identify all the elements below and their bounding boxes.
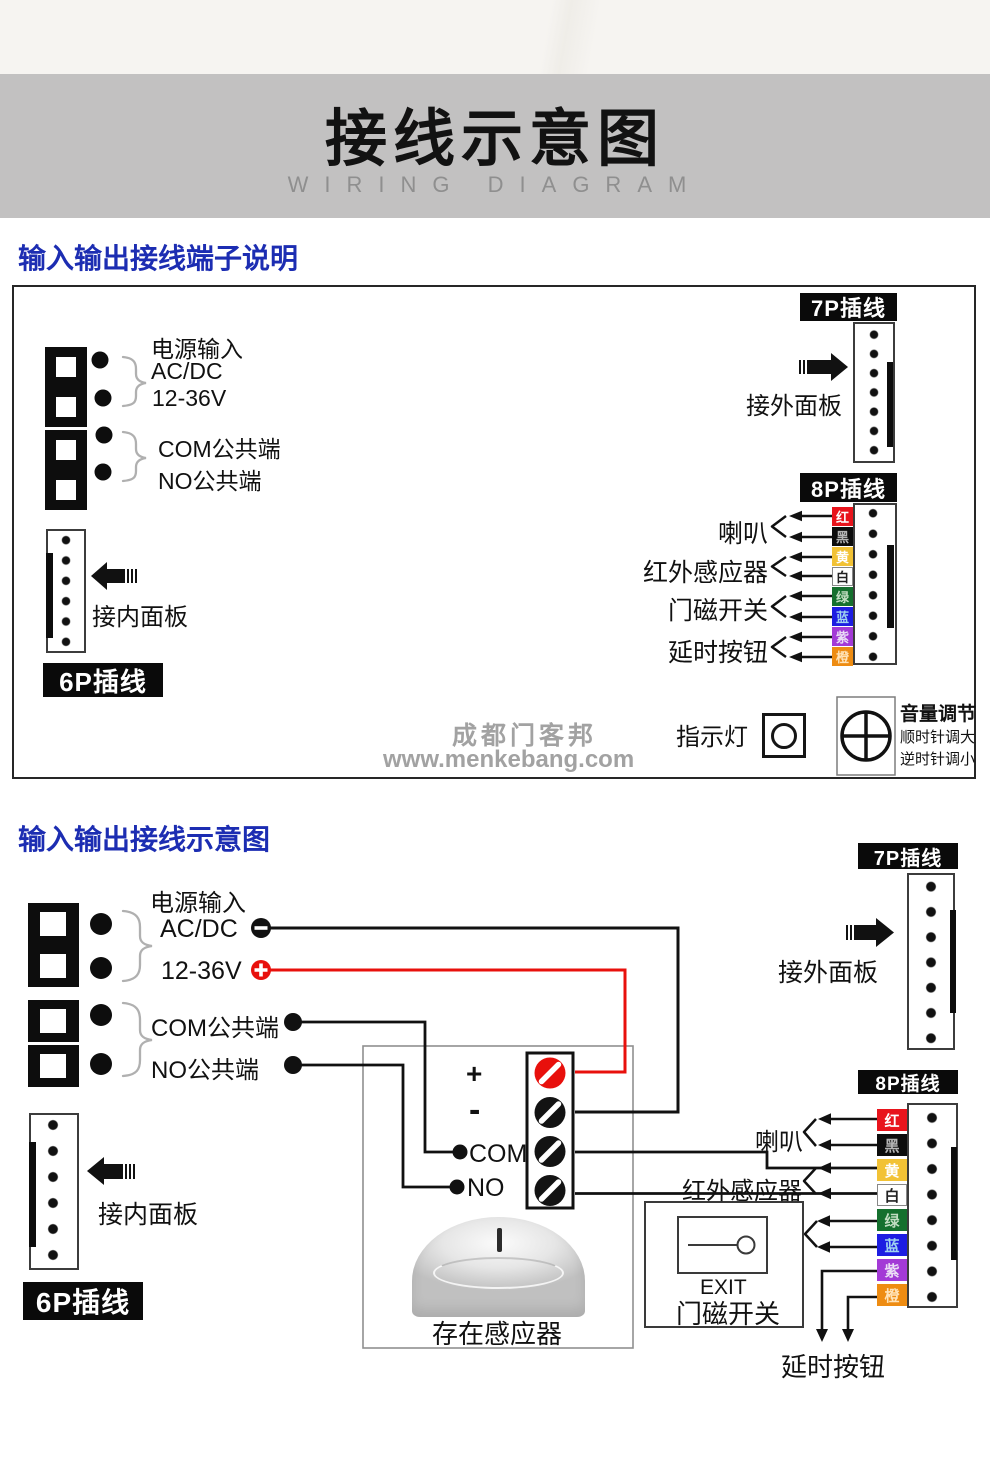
plug-8p-label: 8P插线 <box>800 473 897 502</box>
no-terminal-label: NO公共端 <box>158 462 262 496</box>
relay-plus-label: + <box>466 1058 482 1090</box>
terminal-braces <box>123 357 146 481</box>
volume-cw-note: 顺时针调大 <box>900 726 975 747</box>
plug-6p-arrow-icon <box>87 1157 134 1185</box>
terminal-square <box>28 945 79 987</box>
wire-chip-blue: 蓝 <box>877 1234 907 1256</box>
wire-chip-red: 红 <box>877 1109 907 1131</box>
speaker-label: 喇叭 <box>718 514 768 550</box>
com-no-wires <box>284 1013 468 1195</box>
section1-heading: 输入输出接线端子说明 <box>18 237 298 277</box>
acdc-label: AC/DC <box>160 915 238 944</box>
inner-panel-caption: 接内面板 <box>98 1195 198 1231</box>
paper-texture-strip <box>0 0 990 74</box>
wire-chip-purple: 紫 <box>877 1259 907 1281</box>
terminal-braces <box>123 911 152 1076</box>
connector-6p-key-bar <box>29 1142 36 1247</box>
indicator-label: 指示灯 <box>676 717 748 752</box>
terminal-square <box>28 1000 79 1042</box>
wire-chip-blue: 蓝 <box>832 607 853 626</box>
plug-7p-label: 7P插线 <box>800 293 897 321</box>
plug-6p-label: 6P插线 <box>23 1282 143 1320</box>
wire-color-chips: 红 黑 黄 白 绿 蓝 紫 橙 <box>877 1109 907 1309</box>
ir-sensor-label: 红外感应器 <box>682 1171 802 1206</box>
relay-minus-label: - <box>469 1091 480 1130</box>
indicator-light <box>762 713 806 758</box>
presence-sensor-label: 存在感应器 <box>432 1314 562 1351</box>
wire-chip-yellow: 黄 <box>832 547 853 566</box>
outer-panel-caption: 接外面板 <box>778 953 878 989</box>
com-terminal-label: COM公共端 <box>158 430 281 464</box>
connector-7p-key-bar <box>950 910 956 1013</box>
connector-8p-pins <box>866 503 880 667</box>
outer-panel-caption: 接外面板 <box>746 386 842 421</box>
page-subtitle: WIRING DIAGRAM <box>0 172 990 198</box>
sensor-screw-terminal <box>527 1053 573 1208</box>
terminal-square <box>45 430 87 470</box>
wire-color-chips: 红 黑 黄 白 绿 蓝 紫 橙 <box>832 507 853 667</box>
terminal-square <box>45 347 87 387</box>
plug-7p-arrow-icon <box>847 918 894 947</box>
plug-7p-arrow-icon <box>800 353 848 381</box>
plug-6p-label: 6P插线 <box>43 663 163 697</box>
connector-8p-pins <box>925 1105 939 1310</box>
speaker-label: 喇叭 <box>755 1122 803 1157</box>
com-terminal-label: COM公共端 <box>151 1008 279 1043</box>
watermark-url: www.menkebang.com <box>383 746 634 774</box>
wire-chip-white: 白 <box>877 1184 907 1206</box>
relay-no-label: NO <box>467 1174 505 1203</box>
wiring-diagram-page: 接线示意图 WIRING DIAGRAM 输入输出接线端子说明 <box>0 0 990 1457</box>
wire-chip-white: 白 <box>832 567 853 586</box>
page-title: 接线示意图 <box>0 88 990 178</box>
sensor-notch-icon <box>497 1228 502 1252</box>
volume-title: 音量调节 <box>900 699 976 726</box>
connector-7p-key-bar <box>887 362 893 447</box>
connector-6p-pins <box>46 1112 60 1268</box>
indicator-lens-icon <box>771 723 797 749</box>
wire-chip-orange: 橙 <box>877 1284 907 1306</box>
connector-8p-key-bar <box>887 545 894 628</box>
wire-arrows <box>789 511 832 663</box>
terminal-dots <box>90 913 112 1075</box>
inner-panel-caption: 接内面板 <box>92 597 188 632</box>
wire-chip-black: 黑 <box>877 1134 907 1156</box>
wire-chip-yellow: 黄 <box>877 1159 907 1181</box>
delay-button-label: 延时按钮 <box>781 1347 885 1384</box>
power-wires <box>251 918 678 1112</box>
wire-chip-red: 红 <box>832 507 853 526</box>
terminal-square <box>28 1045 79 1087</box>
terminal-square <box>28 903 79 945</box>
power-input-label: 电源输入 <box>150 883 246 918</box>
wire-chip-green: 绿 <box>877 1209 907 1231</box>
ir-sensor-label: 红外感应器 <box>643 553 768 589</box>
wire-chip-green: 绿 <box>832 587 853 606</box>
wire-chip-purple: 紫 <box>832 627 853 646</box>
terminal-square <box>45 470 87 510</box>
no-terminal-label: NO公共端 <box>151 1050 259 1085</box>
delay-button-label: 延时按钮 <box>668 633 768 669</box>
wire-chip-black: 黑 <box>832 527 853 546</box>
connector-8p-key-bar <box>951 1147 957 1260</box>
door-magnet-label: 门磁开关 <box>676 1294 780 1331</box>
plug-8p-label: 8P插线 <box>858 1070 958 1094</box>
connector-6p-pins <box>59 530 73 652</box>
voltage-label: 12-36V <box>152 385 226 412</box>
connector-6p-key-bar <box>46 553 53 638</box>
function-pair-braces <box>772 516 786 657</box>
volume-ccw-note: 逆时针调小 <box>900 748 975 769</box>
terminal-dots <box>92 352 113 481</box>
volume-knob-icon[interactable] <box>837 697 895 775</box>
plug-6p-arrow-icon <box>91 562 136 590</box>
door-magnet-label: 门磁开关 <box>668 591 768 627</box>
terminal-square <box>45 387 87 427</box>
plug-7p-label: 7P插线 <box>858 843 958 869</box>
connector-7p-pins <box>867 325 881 460</box>
voltage-label: 12-36V <box>161 957 242 986</box>
connector-7p-pins <box>924 874 938 1051</box>
acdc-label: AC/DC <box>151 358 223 385</box>
relay-com-label: COM <box>469 1140 527 1169</box>
wire-chip-orange: 橙 <box>832 647 853 666</box>
